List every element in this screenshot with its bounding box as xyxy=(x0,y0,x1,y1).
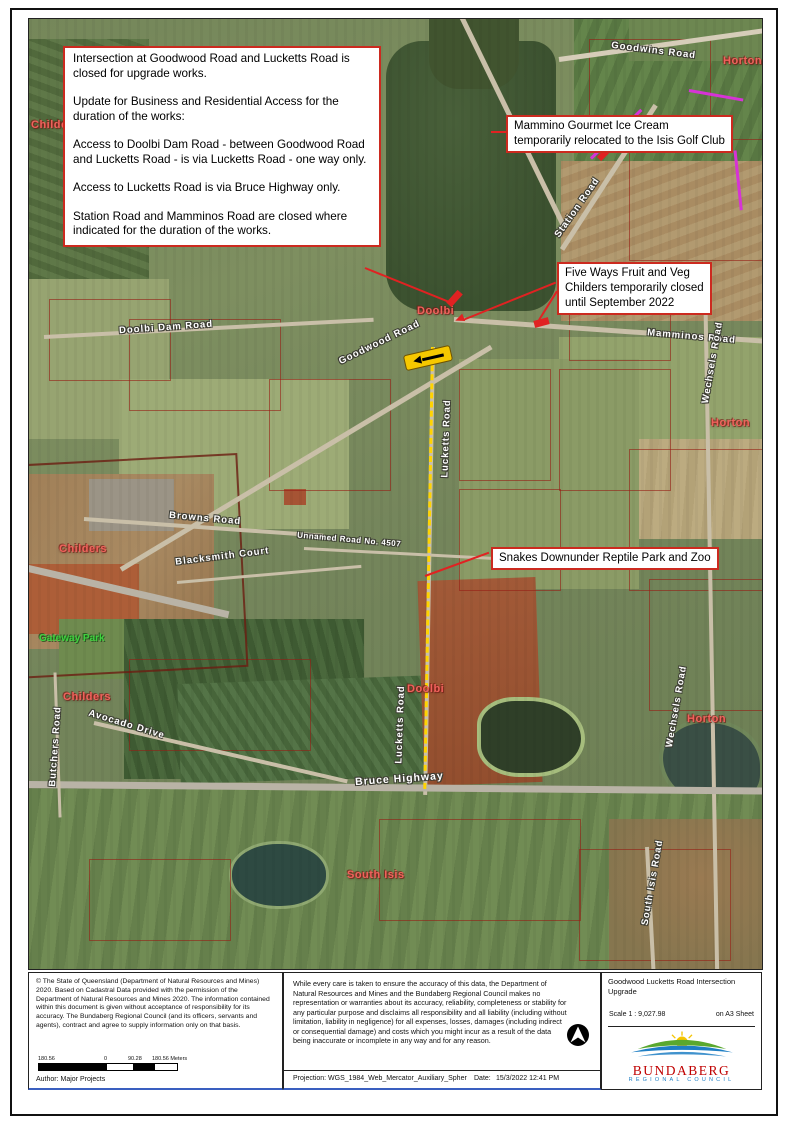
locality-gateway-park: Gateway Park xyxy=(39,633,105,644)
leader-mammino xyxy=(491,131,506,133)
callout-five-ways-line3: until September 2022 xyxy=(565,296,704,311)
projection-text: Projection: WGS_1984_Web_Mercator_Auxili… xyxy=(293,1075,467,1082)
notice-paragraph: Access to Lucketts Road is via Bruce Hig… xyxy=(73,181,371,196)
footer-disclaimer-box: While every care is taken to ensure the … xyxy=(283,972,601,1090)
scale-bar-label: 90.28 xyxy=(128,1056,142,1062)
leader-arrowhead xyxy=(454,314,465,325)
notice-paragraph: Access to Doolbi Dam Road - between Good… xyxy=(73,138,371,167)
scale-row: Scale 1 : 9,027.98 on A3 Sheet xyxy=(608,1011,755,1023)
projection-date-row: Projection: WGS_1984_Web_Mercator_Auxili… xyxy=(284,1070,600,1088)
footer-copyright-box: © The State of Queensland (Department of… xyxy=(28,972,283,1090)
locality-childers-s: Childers xyxy=(63,691,111,703)
road-label-unnamed: Unnamed Road No. 4507 xyxy=(297,530,402,548)
scale-text: Scale 1 : 9,027.98 xyxy=(609,1011,665,1018)
locality-childers-mid: Childers xyxy=(59,543,107,555)
notice-paragraph: Station Road and Mamminos Road are close… xyxy=(73,210,371,239)
scale-bar-label: 0 xyxy=(104,1056,107,1062)
author-text: Author: Major Projects xyxy=(36,1076,275,1083)
date-label: Date: xyxy=(474,1075,491,1082)
disclaimer-text: While every care is taken to ensure the … xyxy=(284,973,600,1070)
north-arrow-icon xyxy=(566,1023,590,1052)
notice-paragraph: Update for Business and Residential Acce… xyxy=(73,95,371,124)
road-label-butchers: Butchers Road xyxy=(47,706,64,787)
sheet-size-text: on A3 Sheet xyxy=(716,1011,754,1018)
map-title: Goodwood Lucketts Road Intersection Upgr… xyxy=(608,977,755,997)
callout-five-ways: Five Ways Fruit and Veg Childers tempora… xyxy=(557,262,712,315)
callout-snakes: Snakes Downunder Reptile Park and Zoo xyxy=(491,547,719,570)
council-logo: BUNDABERG REGIONAL COUNCIL xyxy=(608,1026,755,1085)
date-value: 15/3/2022 12:41 PM xyxy=(496,1075,559,1082)
copyright-text: © The State of Queensland (Department of… xyxy=(36,978,275,1055)
callout-five-ways-line2: Childers temporarily closed xyxy=(565,281,704,296)
locality-doolbi-n: Doolbi xyxy=(417,305,454,317)
locality-horton-se: Horton xyxy=(687,713,726,725)
map-sheet: { "notice": { "lines": [ "Intersection a… xyxy=(0,0,790,1126)
scale-bar-label: 180.56 xyxy=(38,1056,55,1062)
footer-title-box: Goodwood Lucketts Road Intersection Upgr… xyxy=(601,972,762,1090)
council-logo-name: BUNDABERG xyxy=(608,1064,755,1078)
locality-horton-e: Horton xyxy=(711,417,750,429)
council-logo-subtitle: REGIONAL COUNCIL xyxy=(608,1077,755,1085)
callout-mammino: Mammino Gourmet Ice Cream temporarily re… xyxy=(506,115,733,153)
callout-snakes-line1: Snakes Downunder Reptile Park and Zoo xyxy=(499,551,711,566)
locality-south-isis: South Isis xyxy=(347,869,405,881)
locality-doolbi-s: Doolbi xyxy=(407,683,444,695)
one-way-sign xyxy=(403,345,453,371)
callout-mammino-line2: temporarily relocated to the Isis Golf C… xyxy=(514,134,725,149)
road-closure-notice: Intersection at Goodwood Road and Lucket… xyxy=(63,46,381,247)
notice-paragraph: Intersection at Goodwood Road and Lucket… xyxy=(73,52,371,81)
callout-five-ways-line1: Five Ways Fruit and Veg xyxy=(565,266,704,281)
road-label-lucketts-north: Lucketts Road xyxy=(439,399,453,478)
scale-bar-label: 180.56 Meters xyxy=(152,1056,187,1062)
callout-mammino-line1: Mammino Gourmet Ice Cream xyxy=(514,119,725,134)
council-logo-graphic xyxy=(627,1029,737,1059)
locality-horton-ne: Horton xyxy=(723,55,762,67)
scale-bar: 180.56 0 90.28 180.56 Meters xyxy=(38,1056,188,1072)
aerial-map: Goodwins Road Station Road Doolbi Dam Ro… xyxy=(28,18,763,970)
